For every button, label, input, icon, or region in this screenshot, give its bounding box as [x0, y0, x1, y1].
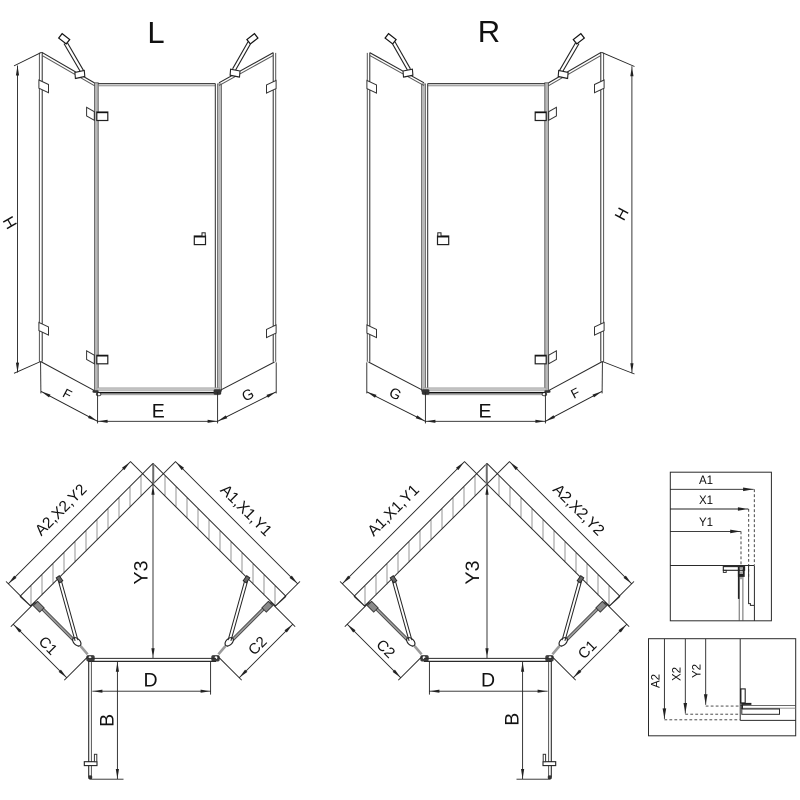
svg-text:B: B	[502, 713, 524, 726]
svg-text:Y3: Y3	[130, 561, 152, 585]
svg-text:E: E	[478, 400, 491, 422]
svg-text:R: R	[478, 14, 500, 49]
svg-text:B: B	[96, 714, 118, 727]
svg-text:Y3: Y3	[462, 561, 484, 585]
svg-text:D: D	[144, 670, 158, 692]
svg-text:X2: X2	[671, 667, 683, 681]
svg-text:L: L	[147, 15, 164, 50]
svg-text:A1: A1	[699, 475, 713, 487]
svg-text:Y1: Y1	[699, 517, 713, 529]
svg-text:X1: X1	[699, 495, 713, 507]
svg-text:E: E	[152, 400, 165, 422]
svg-text:A2: A2	[650, 674, 662, 688]
svg-text:D: D	[481, 670, 495, 692]
svg-text:Y2: Y2	[692, 664, 704, 678]
